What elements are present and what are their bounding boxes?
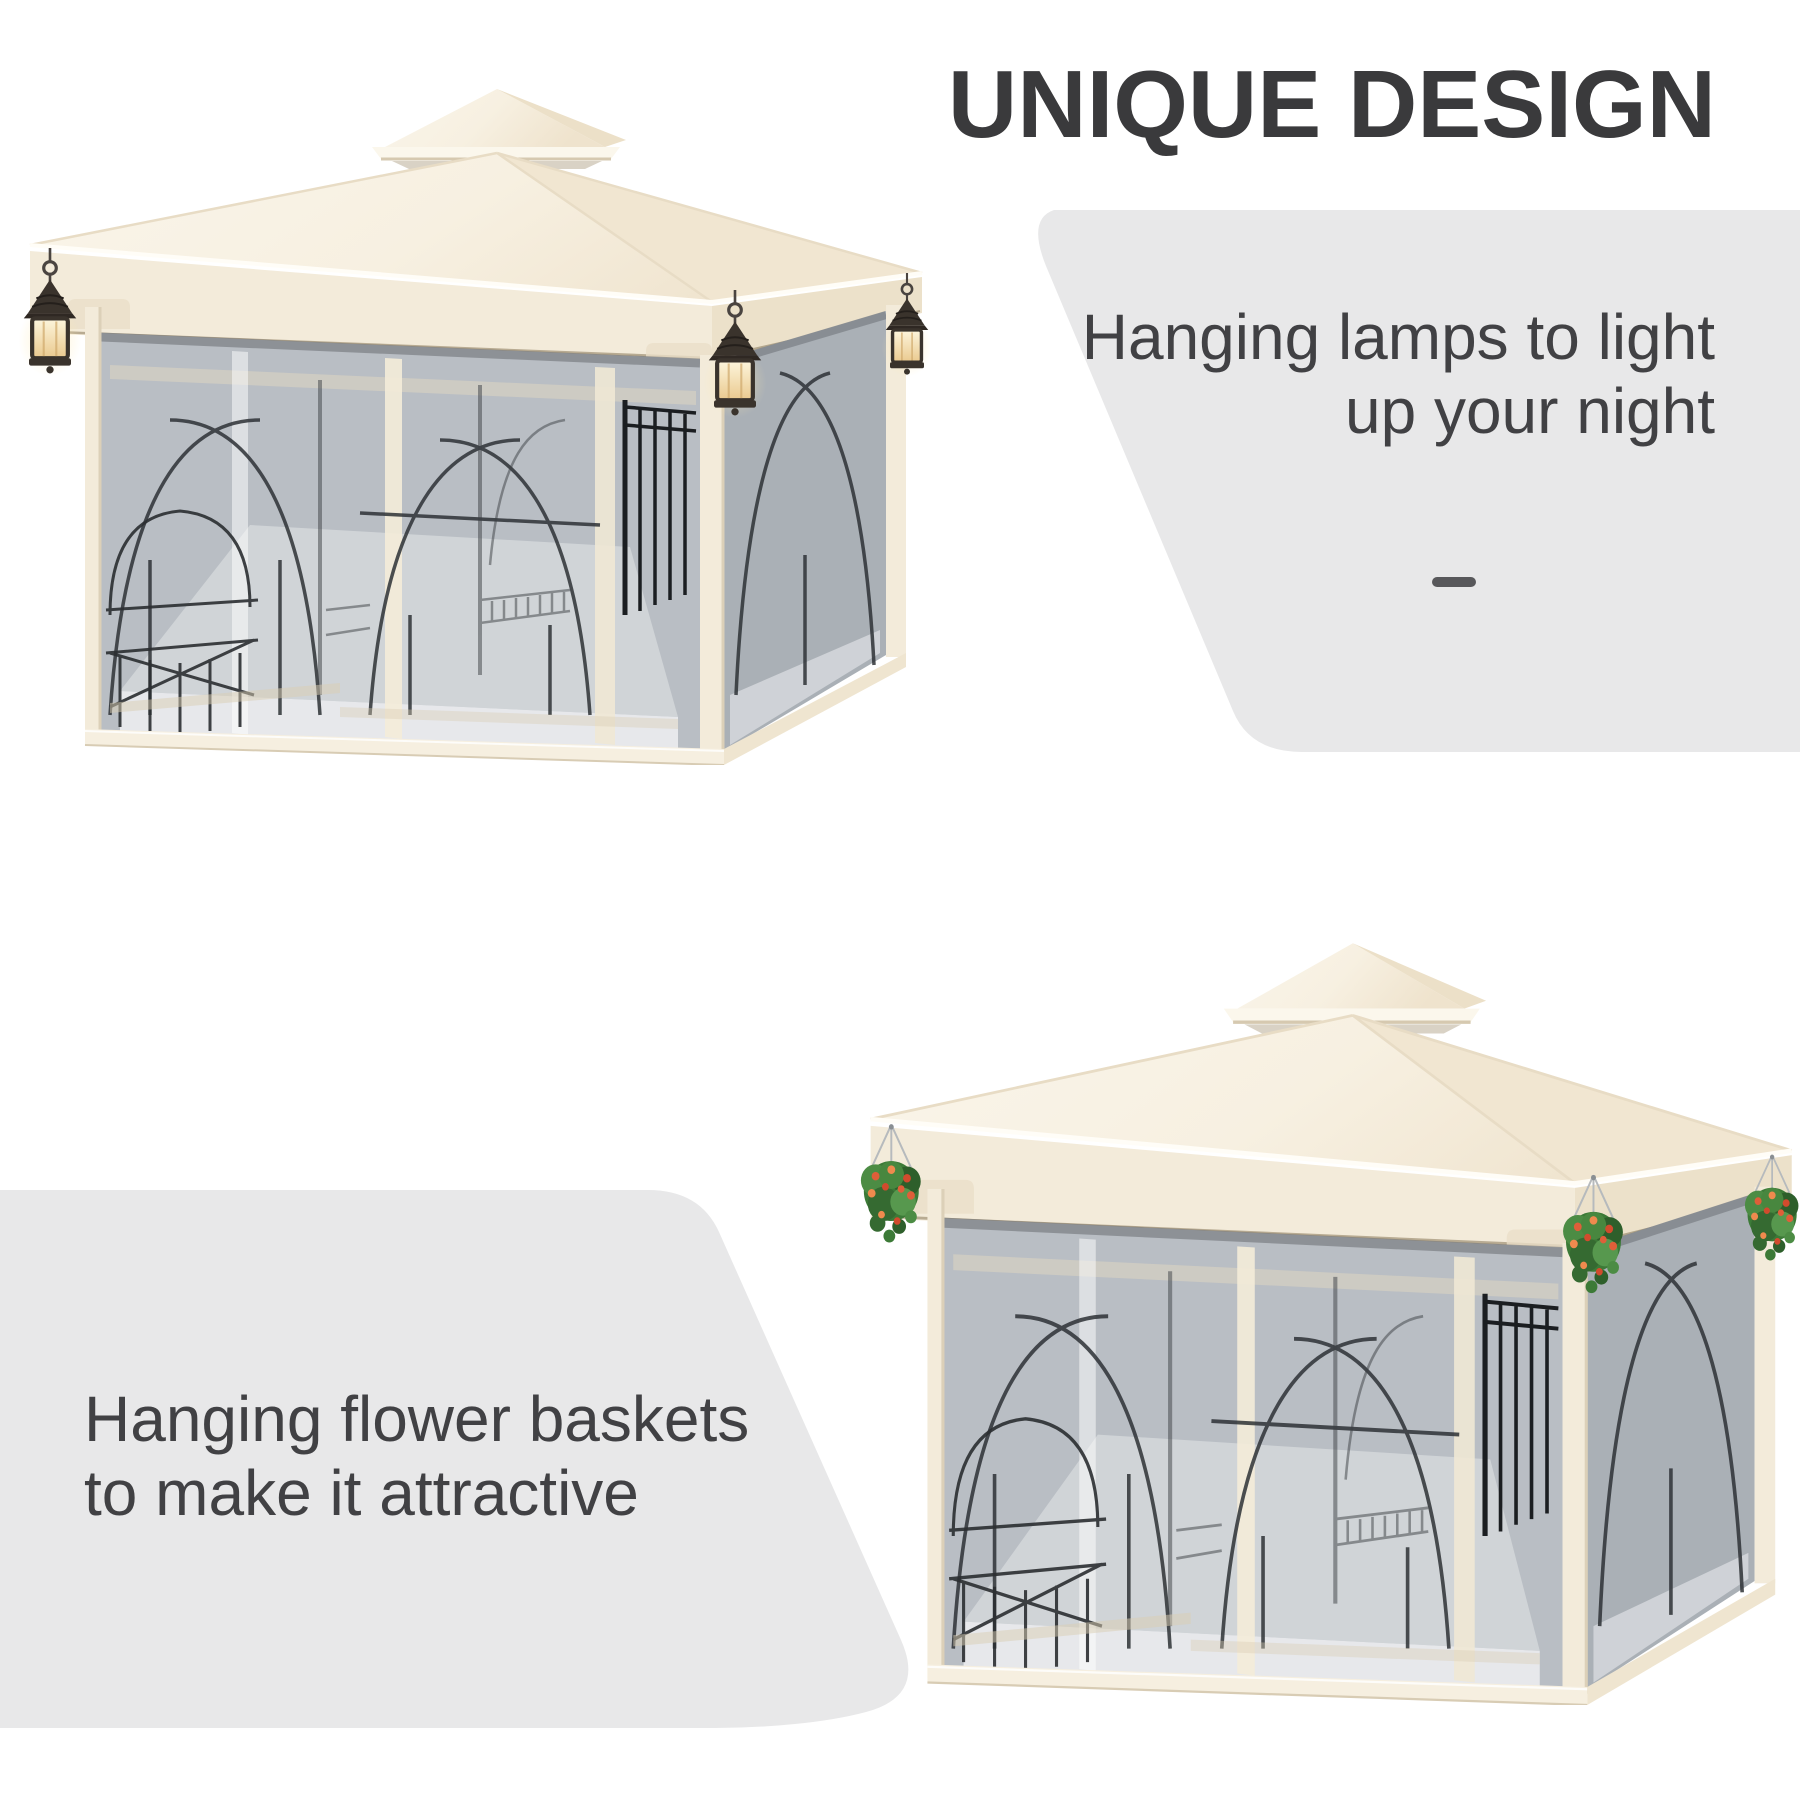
feature-caption-baskets: Hanging flower baskets to make it attrac… [84, 1382, 749, 1530]
feature-caption-baskets-line1: Hanging flower baskets [84, 1382, 749, 1456]
page-title-text: UNIQUE DESIGN [948, 51, 1716, 158]
marketing-page: UNIQUE DESIGN Hanging lamps to light up … [0, 0, 1800, 1800]
gazebo-with-flower-baskets-photo [850, 905, 1800, 1705]
page-title: UNIQUE DESIGN [948, 50, 1716, 160]
feature-caption-lamps: Hanging lamps to light up your night [1082, 300, 1715, 448]
dash-accent [1432, 577, 1476, 587]
feature-caption-lamps-line1: Hanging lamps to light [1082, 300, 1715, 374]
feature-caption-baskets-line2: to make it attractive [84, 1456, 749, 1530]
feature-caption-lamps-line2: up your night [1082, 374, 1715, 448]
gazebo-with-hanging-lamps-photo [10, 55, 930, 765]
feature-panel-lamps [1038, 210, 1800, 752]
